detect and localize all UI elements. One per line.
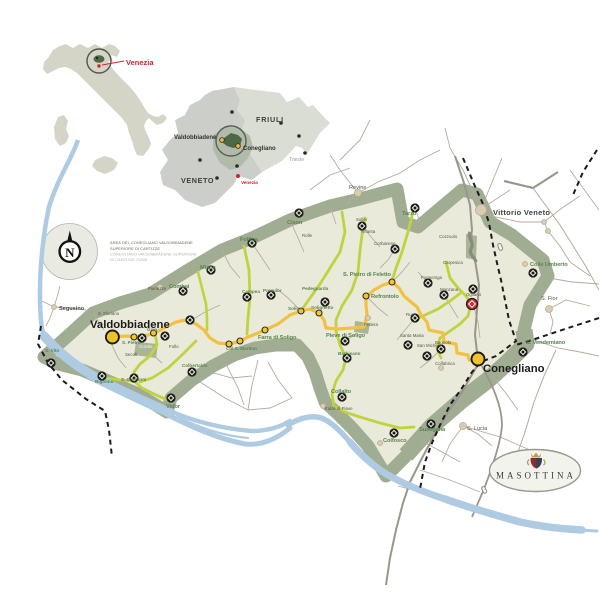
svg-text:Formeniga: Formeniga — [421, 275, 443, 280]
svg-text:CONEGLIANO VALDOBBIADENE SUPER: CONEGLIANO VALDOBBIADENE SUPERIORE — [110, 252, 197, 257]
svg-text:Combai: Combai — [169, 284, 190, 290]
svg-text:Vittorio Veneto: Vittorio Veneto — [493, 208, 550, 217]
svg-text:SUPERIORE DI CARTIZZE: SUPERIORE DI CARTIZZE — [110, 246, 160, 251]
svg-text:Guietta: Guietta — [139, 344, 153, 349]
svg-text:Arfanta: Arfanta — [361, 229, 376, 234]
svg-text:S. Pietro di Feletto: S. Pietro di Feletto — [343, 272, 392, 278]
svg-text:Carpesica: Carpesica — [443, 260, 463, 265]
svg-text:Valdobbiadene: Valdobbiadene — [90, 319, 170, 331]
svg-text:Follo: Follo — [169, 344, 179, 349]
svg-text:Conegliano: Conegliano — [243, 146, 276, 152]
svg-text:Cozzuolo: Cozzuolo — [439, 234, 458, 239]
svg-text:Pianezze: Pianezze — [148, 286, 167, 291]
svg-text:Campea: Campea — [242, 289, 260, 294]
svg-text:Miane: Miane — [200, 265, 216, 271]
svg-text:S. Vendemiano: S. Vendemiano — [526, 340, 566, 346]
svg-text:Falzè di Piave: Falzè di Piave — [325, 406, 353, 411]
svg-text:Solighetto: Solighetto — [311, 305, 334, 310]
svg-text:Colle Umberto: Colle Umberto — [530, 262, 568, 268]
svg-text:Soller: Soller — [356, 217, 368, 222]
svg-text:S. Floriano: S. Floriano — [98, 311, 120, 316]
svg-text:Secoli: Secoli — [125, 352, 137, 357]
svg-text:Premaor: Premaor — [263, 288, 282, 293]
svg-text:Santa Maria: Santa Maria — [400, 333, 424, 338]
svg-text:DI CARTIZZE ZONE: DI CARTIZZE ZONE — [110, 257, 148, 262]
svg-text:VENETO: VENETO — [181, 176, 214, 185]
svg-text:Ogliano: Ogliano — [466, 292, 482, 297]
svg-text:N: N — [65, 245, 75, 260]
svg-text:Col S. Martino: Col S. Martino — [226, 346, 257, 351]
svg-text:Collalto: Collalto — [331, 389, 352, 395]
svg-text:FRIULI: FRIULI — [256, 115, 284, 124]
svg-text:Rua: Rua — [406, 312, 415, 317]
svg-text:Follina: Follina — [240, 237, 259, 243]
svg-text:Tarzo: Tarzo — [402, 211, 417, 217]
svg-text:Conegliano: Conegliano — [483, 363, 545, 375]
svg-text:S. Vito: S. Vito — [45, 348, 59, 353]
svg-text:AREA DEL CONEGLIANO VALDOBBIAD: AREA DEL CONEGLIANO VALDOBBIADENE — [110, 240, 193, 245]
svg-text:Farra di Soligo: Farra di Soligo — [258, 335, 297, 341]
svg-text:MASOTTINA: MASOTTINA — [496, 471, 576, 481]
svg-text:S. Lucia: S. Lucia — [467, 426, 488, 432]
svg-text:Rolle: Rolle — [302, 233, 313, 238]
svg-text:Cison: Cison — [287, 220, 303, 226]
svg-text:Trieste: Trieste — [289, 157, 304, 163]
svg-text:Federa: Federa — [364, 322, 378, 327]
svg-text:Venezia: Venezia — [126, 58, 154, 67]
svg-text:Bigolino: Bigolino — [95, 379, 114, 384]
svg-text:Corbanese: Corbanese — [374, 241, 396, 246]
svg-text:Guia: Guia — [147, 327, 158, 332]
svg-text:Susegana: Susegana — [419, 427, 446, 433]
svg-text:Revine: Revine — [349, 185, 366, 191]
svg-text:Colbertaldo: Colbertaldo — [182, 363, 208, 368]
svg-text:Colfabrica: Colfabrica — [435, 361, 455, 366]
svg-text:Colfosco: Colfosco — [383, 438, 407, 444]
svg-text:Pieve di Soligo: Pieve di Soligo — [326, 333, 366, 339]
svg-text:Barbisano: Barbisano — [338, 351, 361, 356]
svg-text:Vidor: Vidor — [166, 404, 181, 410]
svg-text:Soligo: Soligo — [288, 306, 302, 311]
svg-text:Valdobbiadene: Valdobbiadene — [174, 135, 217, 141]
svg-text:S. Pietro: S. Pietro — [122, 340, 141, 345]
svg-text:Venezia: Venezia — [241, 180, 258, 185]
svg-text:S. Fior: S. Fior — [541, 296, 558, 302]
svg-text:Manzana: Manzana — [440, 287, 459, 292]
svg-text:S. Giovanni: S. Giovanni — [121, 377, 146, 382]
svg-text:Pedeguarda: Pedeguarda — [302, 286, 329, 291]
svg-text:Segusino: Segusino — [59, 306, 85, 312]
svg-text:San Michele: San Michele — [417, 343, 442, 348]
svg-text:Refrontolo: Refrontolo — [371, 294, 399, 300]
